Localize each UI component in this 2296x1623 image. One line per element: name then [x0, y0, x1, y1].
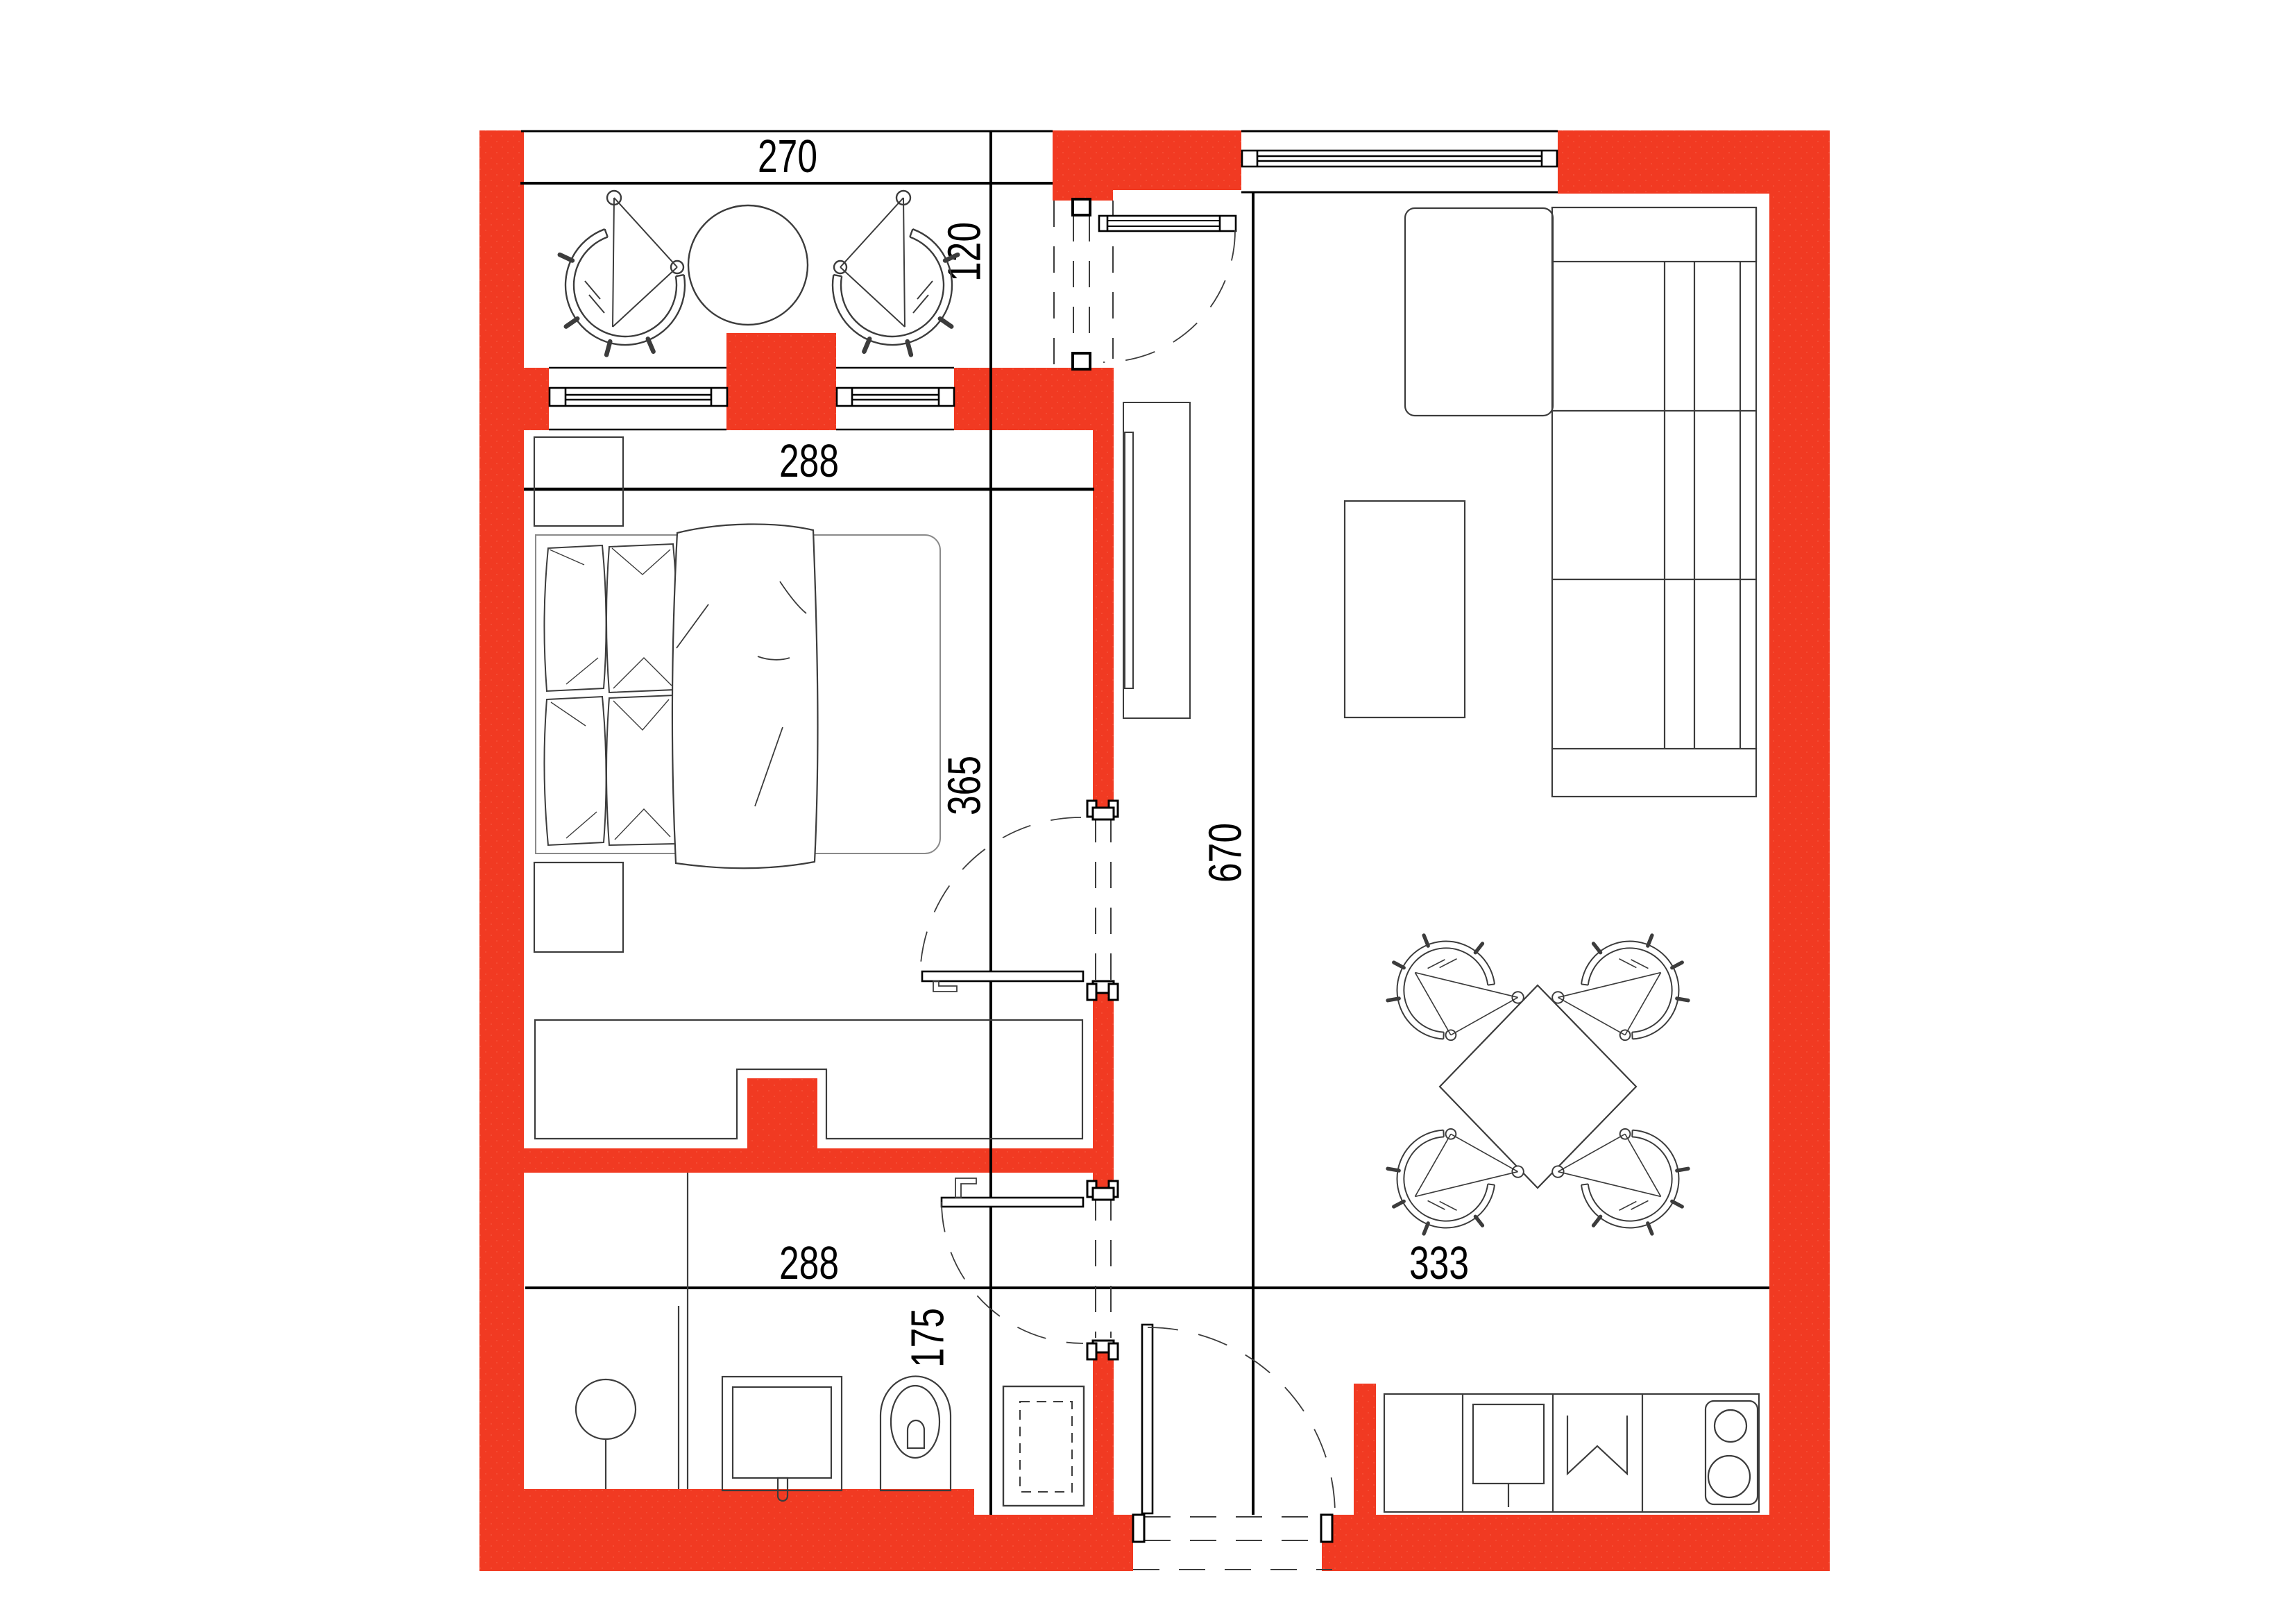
- svg-text:670: 670: [1200, 823, 1252, 883]
- svg-text:288: 288: [779, 435, 839, 487]
- svg-text:288: 288: [779, 1237, 839, 1289]
- svg-text:365: 365: [939, 756, 991, 815]
- svg-text:175: 175: [902, 1308, 954, 1368]
- svg-text:333: 333: [1409, 1237, 1469, 1289]
- svg-text:270: 270: [758, 130, 817, 182]
- svg-text:120: 120: [939, 222, 991, 282]
